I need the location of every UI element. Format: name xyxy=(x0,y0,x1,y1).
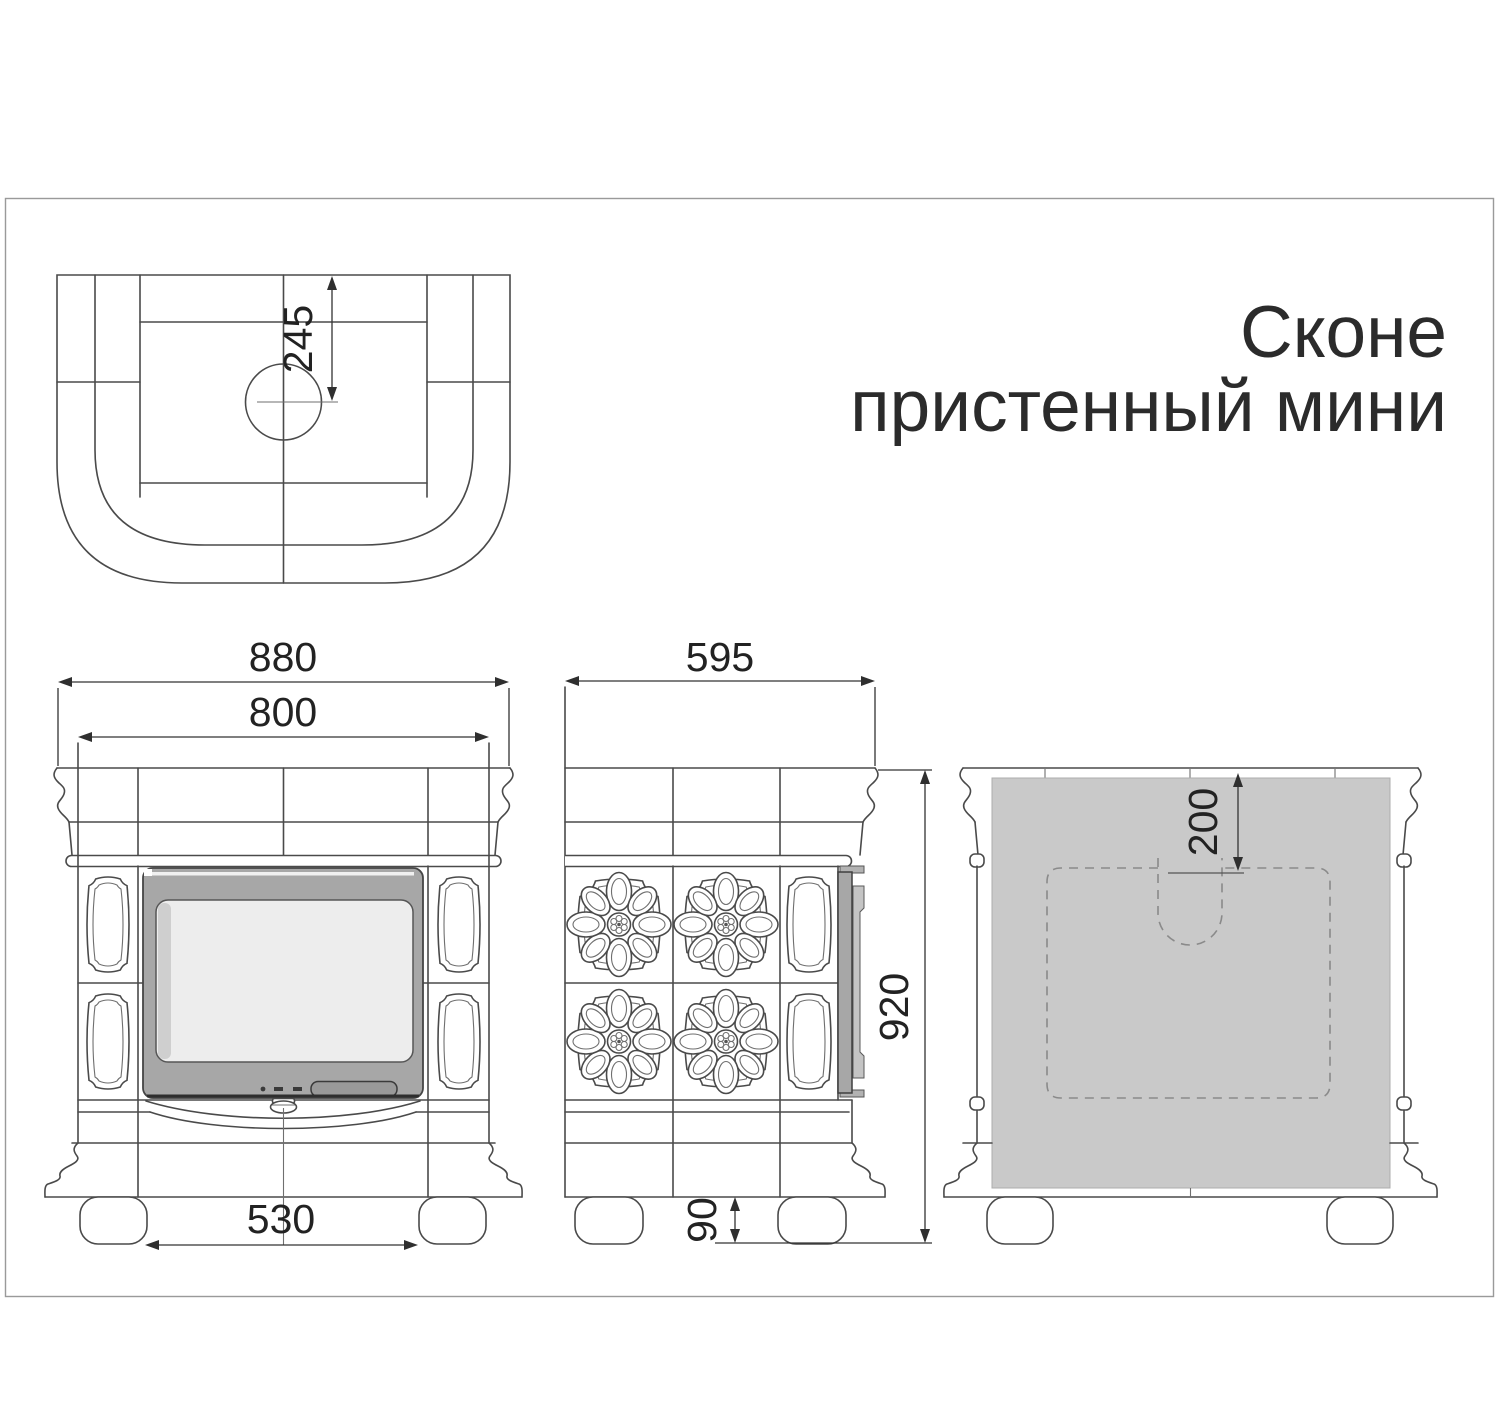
door-handle xyxy=(311,1082,397,1097)
foot-side-left xyxy=(575,1197,643,1244)
title: Сконе пристенный мини xyxy=(850,292,1447,447)
rosette-tile xyxy=(674,990,778,1094)
dim-feet-spacing: 530 xyxy=(145,1196,418,1250)
rosette-tile xyxy=(674,873,778,977)
back-crown-molding-right xyxy=(1406,768,1421,822)
door-vent-dot xyxy=(261,1087,266,1092)
dim-label-530: 530 xyxy=(247,1196,315,1242)
door-edge-strip xyxy=(853,886,864,1078)
drawing-page: Сконе пристенный мини 245 880 xyxy=(0,0,1500,1427)
tile-cartouche xyxy=(438,877,480,972)
side-torus-band xyxy=(565,856,852,867)
title-line-2: пристенный мини xyxy=(850,366,1447,447)
door-vent-slot xyxy=(293,1087,302,1091)
side-crown-molding xyxy=(863,768,878,822)
tile-cartouche xyxy=(787,877,831,972)
tile-cartouche xyxy=(87,877,129,972)
foot-side-right xyxy=(778,1197,846,1244)
torus-cap xyxy=(1397,1097,1411,1110)
rosette-tile xyxy=(567,990,671,1094)
crown-molding-right xyxy=(498,768,513,822)
foot-back-left xyxy=(987,1197,1053,1244)
back-base-molding-left xyxy=(944,1143,977,1197)
dim-label-800: 800 xyxy=(249,689,317,735)
back-band-edge-left xyxy=(975,822,978,855)
foot-back-right xyxy=(1327,1197,1393,1244)
firebox-door xyxy=(143,868,423,1098)
top-view: 245 xyxy=(57,275,510,583)
back-base-molding-right xyxy=(1404,1143,1437,1197)
crown-molding-left xyxy=(54,768,69,822)
dim-label-880: 880 xyxy=(249,634,317,680)
dim-foot-height: 90 xyxy=(679,1197,740,1243)
foot-front-left xyxy=(80,1197,147,1244)
back-crown-molding-left xyxy=(960,768,975,822)
front-view: 880 800 xyxy=(45,634,522,1250)
rosette-tile xyxy=(567,873,671,977)
tile-cartouche xyxy=(787,994,831,1089)
tile-cartouche xyxy=(87,994,129,1089)
title-line-1: Сконе xyxy=(1240,292,1447,373)
door-top-gap xyxy=(150,872,414,876)
dim-depth: 595 xyxy=(565,634,875,766)
base-molding-left xyxy=(45,1143,78,1197)
torus-cap xyxy=(1397,854,1411,867)
foot-front-right xyxy=(419,1197,486,1244)
door-edge-bar xyxy=(838,872,852,1093)
crown-band-edge-right xyxy=(495,822,498,855)
back-band-edge-right xyxy=(1403,822,1406,855)
dim-body-width: 800 xyxy=(78,689,489,742)
back-view: 200 xyxy=(944,768,1437,1244)
door-top-notch xyxy=(144,869,152,876)
dim-label-245: 245 xyxy=(275,305,321,373)
side-crown-band-edge xyxy=(860,822,863,855)
dim-label-595: 595 xyxy=(686,634,754,680)
tile-cartouche xyxy=(438,994,480,1089)
dim-label-90: 90 xyxy=(679,1197,725,1243)
base-molding-right xyxy=(489,1143,522,1197)
technical-drawing: Сконе пристенный мини 245 880 xyxy=(0,0,1500,1427)
dim-label-200: 200 xyxy=(1180,788,1226,856)
dim-label-920: 920 xyxy=(871,973,917,1041)
torus-band xyxy=(66,856,501,867)
torus-cap xyxy=(970,1097,984,1110)
door-vent-slot xyxy=(274,1087,283,1091)
torus-cap xyxy=(970,854,984,867)
door-glass-bevel xyxy=(158,903,171,1059)
door-glass xyxy=(156,900,413,1062)
side-door-profile xyxy=(838,866,864,1097)
crown-band-edge-left xyxy=(69,822,72,855)
side-view: 595 xyxy=(565,634,932,1244)
side-base-molding xyxy=(852,1143,885,1197)
